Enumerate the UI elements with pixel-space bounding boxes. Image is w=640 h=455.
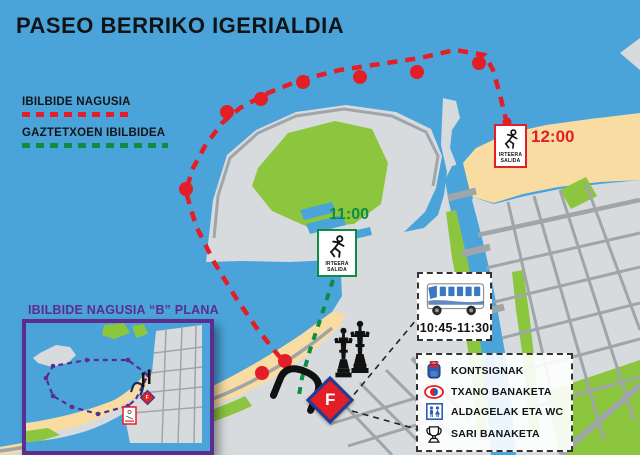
- bus-schedule: 10:45-11:30: [420, 321, 490, 335]
- main-route-label: IBILBIDE NAGUSIA: [22, 96, 202, 108]
- service-label: TXANO BANAKETA: [451, 386, 552, 398]
- start-time-main: 12:00: [531, 127, 574, 147]
- bus-icon: [423, 279, 487, 319]
- inset-title: IBILBIDE NAGUSIA “B” PLANA: [28, 303, 219, 317]
- changing-room-icon: [424, 403, 444, 420]
- youth-route-dash-swatch: [22, 143, 168, 148]
- runner-icon: [326, 233, 348, 261]
- runner-icon: [501, 128, 521, 152]
- finish-letter: F: [325, 390, 335, 410]
- swim-cap-icon: [424, 385, 444, 399]
- page-title: PASEO BERRIKO IGERIALDIA: [16, 13, 344, 39]
- youth-route-label: GAZTETXOEN IBILBIDEA: [22, 127, 202, 139]
- inset-map: F: [22, 319, 214, 455]
- service-row-aldagelak: ALDAGELAK ETA WC: [424, 403, 565, 420]
- service-label: ALDAGELAK ETA WC: [451, 406, 563, 418]
- trophy-icon: [424, 425, 444, 444]
- salida-label: SALIDA: [327, 267, 347, 273]
- service-label: KONTSIGNAK: [451, 365, 524, 377]
- service-label: SARI BANAKETA: [451, 428, 540, 440]
- service-row-txano: TXANO BANAKETA: [424, 385, 565, 399]
- event-map-poster: PASEO BERRIKO IGERIALDIA IBILBIDE NAGUSI…: [0, 0, 640, 455]
- main-route-dash-swatch: [22, 112, 134, 117]
- salida-label: SALIDA: [501, 158, 521, 164]
- start-marker-main: IRTEERA SALIDA: [494, 124, 527, 168]
- route-legend: IBILBIDE NAGUSIA GAZTETXOEN IBILBIDEA: [22, 96, 202, 158]
- backpack-icon: [424, 361, 444, 380]
- inset-canvas: [26, 323, 202, 443]
- bus-shuttle-box: 10:45-11:30: [417, 272, 492, 341]
- service-row-sari: SARI BANAKETA: [424, 425, 565, 444]
- start-time-youth: 11:00: [329, 206, 369, 224]
- service-row-kontsignak: KONTSIGNAK: [424, 361, 565, 380]
- services-legend: KONTSIGNAK TXANO BANAKETA: [416, 353, 573, 452]
- start-marker-youth: IRTEERA SALIDA: [317, 229, 357, 277]
